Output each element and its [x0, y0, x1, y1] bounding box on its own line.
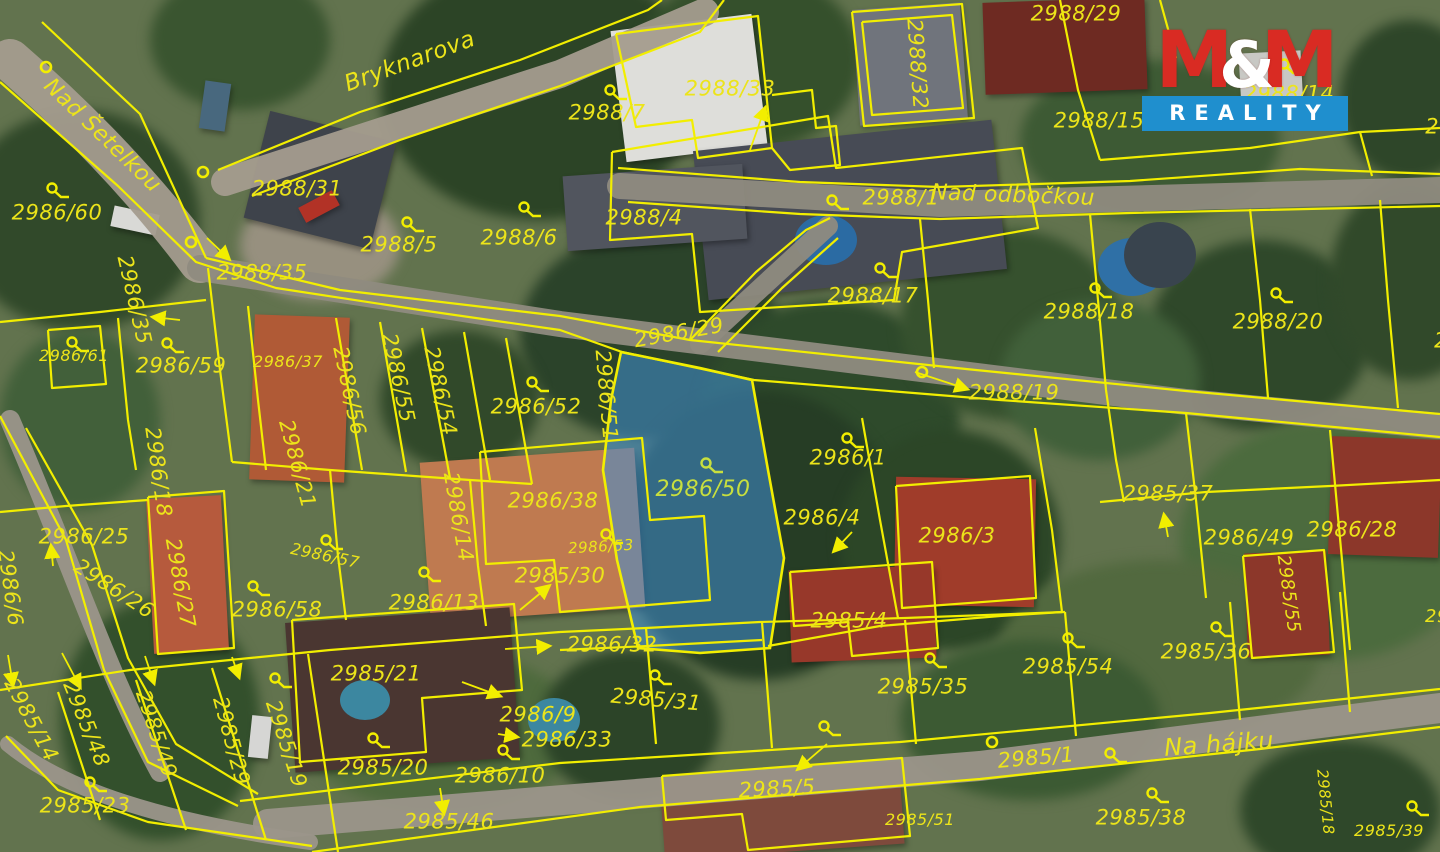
parcel-label: 2988/20 [1233, 312, 1324, 333]
parcel-label: 2986/29 [632, 315, 725, 351]
parcel-label: 29 [1425, 608, 1440, 626]
parcel-label: 2985/54 [1023, 657, 1114, 678]
parcel-label: 2986/14 [440, 470, 476, 563]
parcel-label: 2985/4 [811, 611, 888, 632]
parcel-label: 2986/52 [491, 397, 582, 418]
parcel-label: 2988/33 [685, 79, 776, 100]
parcel-label: 2986/35 [114, 253, 155, 346]
parcel-label: 2985/39 [1354, 823, 1424, 839]
logo-m2: M [1261, 16, 1335, 106]
parcel-label: 2986/60 [12, 203, 103, 224]
parcel-label: 2985/38 [1096, 808, 1187, 829]
parcel-label: 2986/55 [378, 331, 417, 424]
parcel-label: 2986/50 [656, 479, 751, 501]
parcel-label: 2988/6 [481, 228, 558, 249]
parcel-label: 2985/36 [1161, 642, 1252, 663]
parcel-label: 2985/46 [404, 812, 495, 833]
parcel-label: 2986/53 [568, 538, 635, 556]
parcel-label: 2988/17 [828, 286, 919, 307]
parcel-label: 2988/5 [361, 235, 438, 256]
parcel-label: 2986/3 [919, 526, 996, 547]
parcel-label: 2986/33 [522, 730, 613, 751]
street-label: Nad Šetelkou [39, 75, 164, 197]
parcel-label: 2986/6 [0, 548, 26, 627]
parcel-label: 2988/19 [969, 383, 1060, 404]
parcel-label: 2985/23 [40, 796, 131, 817]
logo-ampersand: & [1219, 29, 1271, 103]
parcel-label: 2985/31 [610, 686, 702, 715]
parcel-label: 2985/51 [885, 812, 955, 828]
parcel-label: 2985/1 [997, 744, 1075, 772]
parcel-label: 298 [1425, 117, 1440, 138]
agency-logo: M&M REALITY [1142, 28, 1348, 131]
parcel-label: 2986/25 [39, 527, 130, 548]
parcel-label: 2985/20 [338, 758, 429, 779]
parcel-label: 2985/21 [331, 664, 422, 685]
parcel-label: 2985/5 [738, 777, 816, 802]
parcel-label: 2986/4 [784, 508, 861, 529]
parcel-label: 2985/37 [1123, 484, 1214, 505]
parcel-label: 2986/27 [162, 536, 198, 629]
parcel-label: 2985/18 [1314, 768, 1336, 835]
street-label: Nad odbočkou [931, 182, 1096, 210]
parcel-label: 2985/19 [262, 698, 310, 791]
parcel-label: 2988/29 [1031, 4, 1122, 25]
parcel-label: 2986/56 [329, 344, 368, 437]
parcel-label: 2986/49 [1204, 528, 1295, 549]
parcel-label: 2986/28 [1307, 520, 1398, 541]
parcel-label: 2985/29 [209, 694, 253, 787]
parcel-label: 2986/13 [389, 593, 480, 614]
parcel-label: 2986/10 [455, 766, 546, 787]
parcel-label: 2986/58 [232, 600, 323, 621]
parcel-label: 2988/7 [569, 103, 646, 124]
parcel-label: 2988/15 [1054, 111, 1145, 132]
parcel-label: 2986/32 [567, 635, 658, 656]
parcel-label: 2985/48 [59, 678, 112, 770]
parcel-label: 2985/55 [1274, 554, 1303, 634]
parcel-label: 2986/54 [420, 344, 459, 437]
parcel-label: 2985/49 [132, 688, 180, 781]
cadastral-map-image: BryknarovaNad ŠetelkouNad odbočkouNa háj… [0, 0, 1440, 852]
logo-mm: M&M [1142, 28, 1348, 94]
parcel-label: 2988/32 [903, 18, 930, 110]
parcel-label: 2985/14 [0, 675, 61, 765]
parcel-label: 2985/30 [515, 566, 606, 587]
parcel-label: 2986/38 [508, 491, 599, 512]
parcel-label: 2988/4 [606, 208, 683, 229]
parcel-label: 2985/35 [878, 677, 969, 698]
parcel-label: 2986/1 [810, 448, 887, 469]
parcel-label: 2986/51 [592, 349, 621, 441]
parcel-label: 2986/21 [275, 417, 319, 510]
parcel-label: 2986/61 [39, 348, 109, 364]
parcel-label: 2986/9 [500, 705, 577, 726]
parcel-label: 2986/26 [70, 555, 158, 622]
parcel-label: 2988/31 [252, 179, 343, 200]
parcel-label: 2988/18 [1044, 302, 1135, 323]
parcel-label: 2986/37 [253, 354, 323, 370]
parcel-label: 2988/35 [217, 263, 308, 284]
street-label: Bryknarova [342, 28, 479, 96]
parcel-label: 2 [1434, 331, 1440, 352]
parcel-label: 2986/59 [136, 356, 227, 377]
parcel-label: 2988/1 [863, 188, 940, 209]
parcel-label: 2986/18 [141, 426, 174, 519]
street-label: Na hájku [1163, 728, 1274, 760]
parcel-label: 2986/57 [289, 541, 361, 571]
